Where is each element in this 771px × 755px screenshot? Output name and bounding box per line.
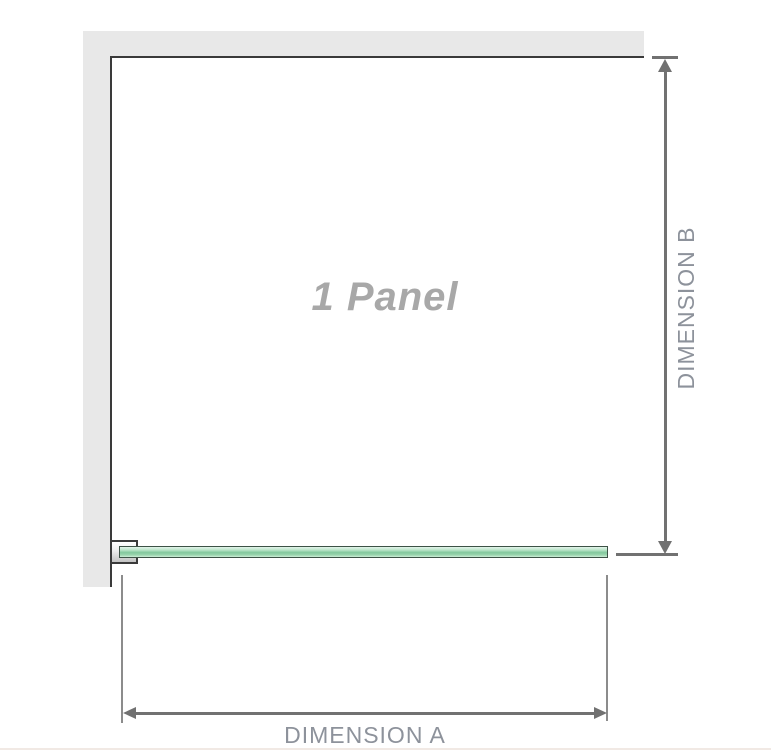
panel-dimension-diagram: 1 Panel DIMENSION B DIMENSION A [0, 0, 771, 755]
dimension-b-line [664, 66, 667, 546]
extension-line-left [121, 575, 123, 723]
dimension-b-label: DIMENSION B [671, 208, 701, 408]
panel-outline-top [110, 56, 644, 58]
wall-band-left [83, 31, 110, 587]
panel-label: 1 Panel [235, 270, 535, 325]
arrow-right-icon [594, 707, 607, 719]
glass-panel [119, 546, 608, 558]
panel-outline-left [110, 56, 112, 587]
arrow-left-icon [123, 707, 136, 719]
dimension-a-label: DIMENSION A [225, 722, 505, 748]
arrow-down-icon [658, 541, 672, 554]
bottom-divider [0, 748, 771, 750]
dimension-a-line [132, 712, 597, 715]
arrow-up-icon [658, 59, 672, 72]
wall-band-top [83, 31, 644, 57]
extension-line-right [606, 575, 608, 721]
